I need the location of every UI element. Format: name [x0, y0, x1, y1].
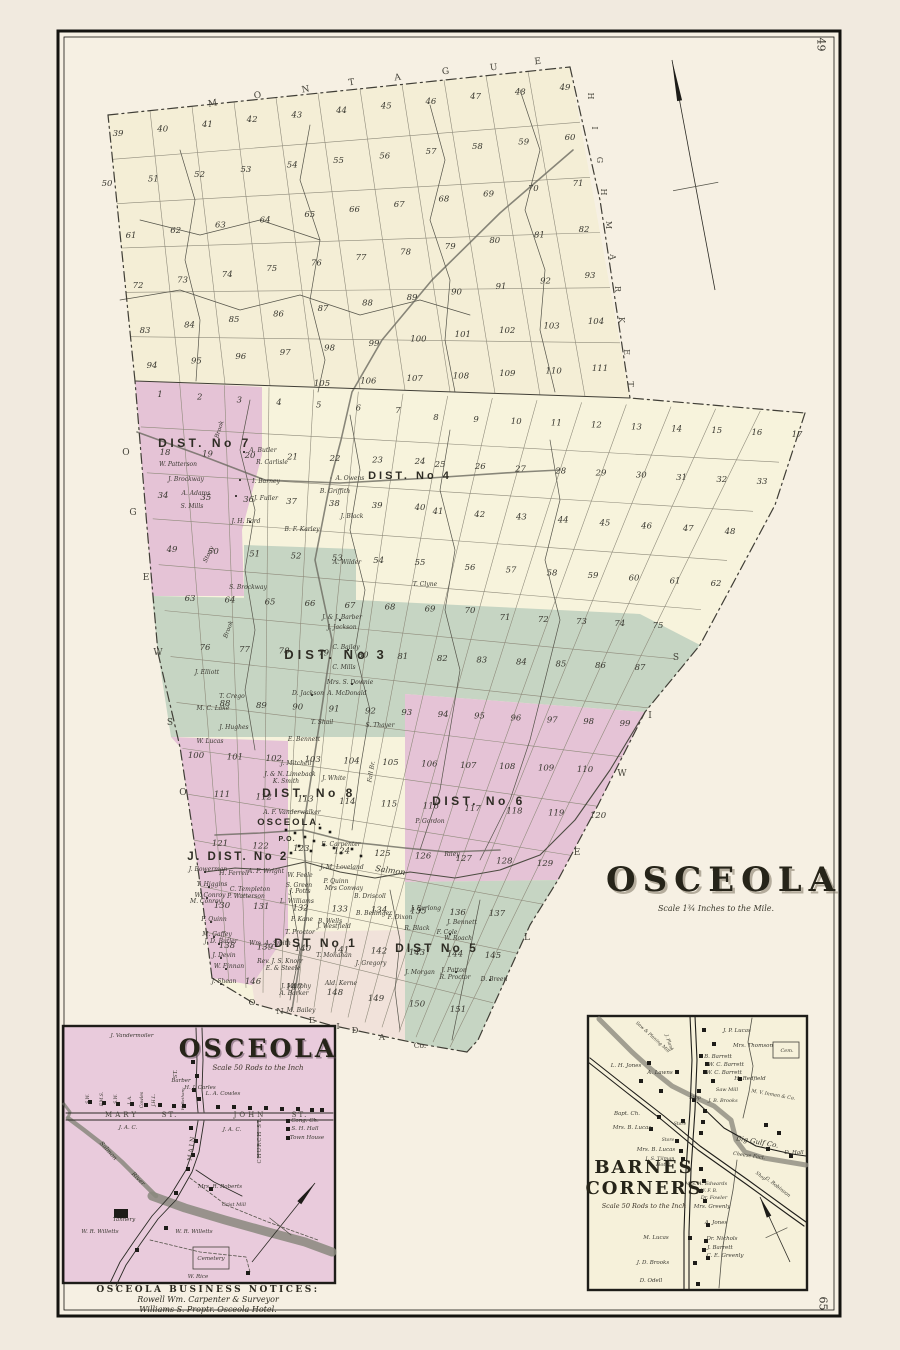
lot-number: 88	[362, 299, 373, 309]
resident-name: W. Lucas	[197, 738, 224, 745]
lot-number: 70	[528, 184, 539, 194]
lot-number: 122	[253, 842, 269, 852]
business-notice-line: Williams S. Proptr. Osceola Hotel.	[76, 1305, 340, 1315]
resident-name: J. & N. Limeback	[262, 771, 316, 778]
building-marker	[158, 1103, 162, 1107]
resident-name: M. Gaffey	[201, 931, 232, 938]
lot-number: 44	[557, 516, 569, 526]
resident-name: D. Jackson	[291, 690, 324, 697]
map-label: H. Redfield	[733, 1076, 766, 1082]
building-marker	[703, 1109, 707, 1113]
lot-number: 108	[499, 762, 516, 772]
building-marker	[647, 1061, 651, 1065]
resident-name: J. Morgan	[403, 969, 435, 976]
map-label: L. H. Jones	[610, 1063, 642, 1069]
lot-number: 59	[518, 138, 529, 148]
building-marker	[248, 1106, 252, 1110]
map-label: Cemetery	[197, 1256, 225, 1262]
map-label: D. Odell	[639, 1278, 663, 1284]
lot-number: 68	[438, 195, 449, 205]
building-marker	[280, 1107, 284, 1111]
lot-number: 101	[227, 752, 243, 762]
resident-name: E. Bennett	[287, 736, 321, 743]
lot-number: 5	[316, 401, 321, 411]
lot-number: 13	[631, 422, 642, 432]
lot-number: 89	[407, 293, 418, 303]
map-label: A	[378, 1033, 386, 1043]
lot-number: 45	[598, 518, 610, 528]
resident-name: F. Dixon	[387, 914, 413, 921]
lot-number: 83	[476, 656, 487, 666]
map-label: M	[604, 221, 613, 229]
building-marker	[286, 1127, 290, 1131]
building-marker	[688, 1236, 692, 1240]
lot-number: 151	[450, 1005, 466, 1015]
lot-number: 73	[576, 617, 587, 627]
business-notices-heading: OSCEOLA BUSINESS NOTICES:	[76, 1285, 340, 1295]
resident-name: J. Jackson	[325, 624, 356, 631]
lot-number: 51	[148, 174, 159, 184]
lot-number: 92	[540, 277, 551, 287]
resident-name: W. Feele	[287, 872, 313, 879]
map-label: Grist Mill	[222, 1202, 246, 1208]
resident-name: J. Murphy	[279, 983, 311, 990]
lot-number: 70	[465, 606, 476, 616]
lot-number: 29	[595, 469, 607, 479]
building-marker	[702, 1028, 706, 1032]
lot-number: 42	[246, 115, 258, 125]
lot-number: 95	[474, 712, 485, 722]
building-marker	[216, 1105, 220, 1109]
resident-name: A. Barker	[278, 990, 309, 997]
resident-name: Mrs Conway	[324, 885, 364, 892]
lot-number: 42	[473, 510, 485, 520]
resident-name: Ald. Kerne	[324, 980, 358, 987]
lot-number: 93	[585, 271, 596, 281]
resident-name: R. Carlisle	[255, 459, 288, 466]
lot-number: 47	[469, 92, 481, 102]
lot-number: 56	[379, 151, 390, 161]
lot-number: 137	[489, 909, 506, 919]
resident-name: T. Higgins	[197, 881, 228, 888]
lot-number: 119	[548, 809, 565, 819]
lot-number: 14	[671, 424, 682, 434]
lot-number: 124	[334, 847, 350, 857]
resident-name: M. C. Lake	[196, 705, 230, 712]
map-label: B. Barrett	[703, 1054, 733, 1060]
building-marker	[294, 832, 297, 835]
lot-number: 52	[194, 170, 205, 180]
lot-number: 142	[371, 947, 387, 957]
map-label: M. Lucas	[642, 1235, 669, 1241]
lot-number: 87	[635, 663, 646, 673]
lot-number: 48	[514, 88, 526, 98]
lot-number: 37	[286, 497, 297, 507]
lot-number: 16	[751, 428, 762, 438]
lot-number: 43	[515, 513, 527, 523]
building-marker	[189, 1126, 193, 1130]
lot-number: 150	[409, 999, 426, 1009]
map-label: D. Hall	[783, 1150, 804, 1156]
resident-name: J. D. Butler	[202, 938, 238, 945]
lot-number: 101	[455, 330, 471, 340]
lot-number: 49	[166, 545, 178, 555]
resident-name: Rev. J. S. Knorr	[256, 958, 304, 965]
building-marker	[329, 831, 332, 834]
building-marker	[197, 1097, 201, 1101]
lot-number: 46	[424, 97, 436, 107]
building-marker	[310, 1108, 314, 1112]
resident-name: J. Hughes	[217, 724, 248, 731]
lot-number: 90	[292, 703, 303, 713]
lot-number: 59	[588, 571, 599, 581]
lot-number: 82	[437, 654, 448, 664]
resident-name: Riley	[443, 851, 460, 858]
lot-number: 57	[506, 566, 517, 576]
map-label: Cong. Ch.	[291, 1118, 319, 1124]
map-label: I	[590, 126, 599, 129]
map-label: J. Barrett	[706, 1245, 733, 1251]
map-label: S.W.	[85, 1094, 91, 1104]
lot-number: 98	[583, 717, 594, 727]
lot-number: 108	[453, 372, 470, 382]
building-marker	[702, 1248, 706, 1252]
lot-number: 10	[511, 417, 522, 427]
lot-number: 23	[371, 456, 383, 466]
lot-number: 81	[534, 231, 545, 241]
map-label: E	[534, 57, 542, 68]
lot-number: 73	[177, 275, 188, 285]
map-label: Mrs. B. Lucas	[636, 1147, 676, 1153]
lot-number: 93	[401, 708, 412, 718]
lot-number: 103	[543, 321, 559, 331]
lot-number: 72	[538, 615, 549, 625]
resident-name: T. Monahan	[316, 952, 352, 959]
lot-number: 105	[382, 758, 398, 768]
lot-number: 79	[445, 242, 456, 252]
lot-number: 78	[400, 247, 411, 257]
lot-number: 71	[500, 613, 511, 623]
lot-number: 99	[620, 719, 631, 729]
lot-number: 102	[266, 754, 282, 764]
map-label: O	[249, 998, 256, 1008]
lot-number: 15	[711, 426, 722, 436]
lot-number: 53	[240, 165, 251, 175]
lot-number: 109	[499, 369, 516, 379]
resident-name: K. Smith	[272, 778, 299, 785]
building-marker	[675, 1070, 679, 1074]
building-marker	[659, 1089, 663, 1093]
lot-number: 33	[757, 477, 768, 487]
building-marker	[313, 840, 316, 843]
map-label: A	[608, 253, 617, 260]
lot-number: 105	[314, 379, 330, 389]
lot-number: 123	[293, 844, 309, 854]
lot-number: 32	[716, 475, 727, 485]
building-marker	[696, 1282, 700, 1286]
lot-number: 48	[724, 527, 736, 537]
lot-number: 76	[200, 643, 211, 653]
lot-number: 136	[450, 908, 467, 918]
resident-name: W. Patterson	[159, 461, 197, 468]
lot-number: 115	[381, 799, 397, 809]
map-label: Barber	[170, 1078, 191, 1084]
lot-number: 96	[510, 714, 521, 724]
lot-number: 149	[368, 994, 385, 1004]
lot-number: 74	[614, 619, 625, 629]
lot-number: 104	[588, 317, 604, 327]
map-label: W	[617, 769, 627, 779]
building-marker	[777, 1131, 781, 1135]
lot-number: 41	[432, 507, 444, 517]
building-marker	[285, 829, 288, 832]
map-label: W. R. Willetts	[81, 1229, 118, 1235]
map-label: M	[207, 98, 218, 109]
resident-name: R. Black	[403, 925, 430, 932]
lot-number: 65	[304, 210, 315, 220]
map-label: Store	[662, 1137, 675, 1143]
map-label: W. Rice	[188, 1274, 209, 1280]
map-label: Store	[674, 1121, 687, 1127]
lot-number: 11	[551, 419, 562, 429]
lot-number: 36	[243, 495, 254, 505]
resident-name: P. Gordon	[414, 818, 444, 825]
map-label: E	[574, 848, 581, 858]
resident-name: A. McDonald	[326, 690, 366, 697]
map-label: I	[648, 711, 652, 721]
lot-number: 43	[290, 111, 302, 121]
lot-number: 26	[474, 462, 486, 472]
map-label: L.A.	[127, 1095, 133, 1106]
building-marker	[195, 1074, 199, 1078]
building-marker	[304, 836, 307, 839]
osceola-inset-title: OSCEOLA	[156, 1034, 360, 1063]
resident-name: C. Mills	[332, 664, 355, 671]
lot-number: 85	[229, 315, 240, 325]
resident-name: J. Elliott	[193, 669, 220, 676]
lot-number: 100	[188, 751, 205, 761]
resident-name: B. Griffith	[319, 488, 350, 495]
lot-number: 58	[472, 142, 483, 152]
barnes-inset-title-line2: CORNERS	[560, 1179, 728, 1200]
building-marker	[310, 850, 313, 853]
lot-number: 40	[414, 503, 426, 513]
resident-name: P. Kane	[290, 916, 314, 923]
lot-number: 84	[516, 658, 527, 668]
resident-name: E. & Steele	[265, 965, 301, 972]
barnes-inset-scale: Scale 50 Rods to the Inch	[560, 1202, 728, 1210]
map-scale-note: Scale 1¾ Inches to the Mile.	[606, 904, 826, 913]
building-marker	[320, 1108, 324, 1112]
lot-number: 27	[514, 464, 526, 474]
map-label: E	[143, 573, 150, 583]
building-marker	[360, 855, 363, 858]
building-marker	[172, 1104, 176, 1108]
lot-number: 68	[385, 603, 396, 613]
map-region	[135, 381, 262, 596]
lot-number: 82	[579, 225, 590, 235]
lot-number: 87	[318, 304, 329, 314]
resident-name: A. F. Wright	[247, 868, 285, 875]
lot-number: 12	[591, 421, 602, 431]
building-marker	[232, 1105, 236, 1109]
page-number-bottom: 65	[817, 1295, 830, 1313]
resident-name: E. Carpenter	[320, 841, 361, 848]
building-marker	[186, 1167, 190, 1171]
map-label: W. R. Willetts	[175, 1229, 212, 1235]
lot-number: 97	[547, 715, 558, 725]
map-rect	[588, 1016, 807, 1290]
lot-number: 97	[280, 348, 291, 358]
osceola-inset-scale: Scale 50 Rods to the Inch	[156, 1064, 360, 1072]
map-label: Town House	[290, 1135, 325, 1141]
barnes-inset-title-block: BARNES CORNERS Scale 50 Rods to the Inch	[560, 1158, 728, 1210]
lot-number: 133	[332, 904, 348, 914]
lot-number: 9	[473, 415, 479, 425]
resident-name: J. Furlong	[409, 905, 441, 912]
map-label: O	[179, 788, 186, 798]
resident-name: A. Butler	[248, 447, 277, 454]
map-label: L. A. Cowles	[205, 1091, 241, 1097]
lot-number: 19	[202, 450, 213, 460]
lot-number: 72	[133, 281, 144, 291]
resident-name: M. Bailey	[286, 1007, 316, 1014]
lot-number: 100	[410, 335, 427, 345]
map-label: A. Jones	[704, 1220, 728, 1226]
lot-number: 24	[414, 457, 426, 467]
lot-number: 49	[559, 83, 571, 93]
lot-number: 7	[395, 406, 401, 416]
building-marker	[290, 852, 293, 855]
map-label: J. D. Brooks	[636, 1260, 670, 1266]
lot-number: 55	[415, 558, 426, 568]
district-label: P.O.	[278, 836, 295, 843]
lot-number: 17	[792, 430, 803, 440]
resident-name: S. Brockway	[229, 584, 267, 591]
lot-number: 85	[555, 659, 566, 669]
building-marker	[699, 1131, 703, 1135]
resident-name: T. Shail	[311, 719, 333, 726]
lot-number: 148	[327, 988, 344, 998]
lot-number: 98	[324, 343, 335, 353]
lot-number: 62	[170, 226, 181, 236]
map-label: R	[613, 286, 622, 293]
lot-number: 89	[256, 701, 267, 711]
building-marker	[246, 1271, 250, 1275]
lot-number: 55	[333, 156, 344, 166]
building-marker	[711, 1079, 715, 1083]
map-label: S.W.	[113, 1094, 119, 1104]
lot-number: 109	[538, 764, 555, 774]
resident-name: J. Brockway	[166, 476, 204, 483]
lot-number: 77	[239, 645, 250, 655]
map-label: Mrs. R. Roberts	[197, 1184, 242, 1190]
lot-number: 66	[349, 205, 360, 215]
lot-number: 39	[372, 501, 383, 511]
district-label: DIST. No 7	[158, 436, 252, 450]
map-label: Shop	[689, 1095, 701, 1101]
building-marker	[697, 1089, 701, 1093]
map-label: T	[626, 381, 635, 387]
resident-name: J. M. Loveland	[318, 864, 364, 871]
map-label: L	[524, 933, 530, 943]
lot-number: 62	[711, 579, 722, 589]
resident-name: T. Proctor	[285, 929, 316, 936]
lot-number: 145	[485, 951, 501, 961]
map-label: W. C. Barrett	[708, 1062, 745, 1068]
map-label: H	[586, 93, 595, 100]
map-label: Cowles	[139, 1091, 145, 1108]
map-label: Dr. Nichols	[705, 1236, 737, 1242]
lot-number: 91	[329, 704, 340, 714]
lot-number: 39	[113, 129, 124, 139]
map-label: C. E. Greenly	[707, 1253, 745, 1259]
building-marker	[164, 1226, 168, 1230]
resident-name: W. Finnan	[214, 963, 244, 970]
lot-number: 71	[573, 179, 584, 189]
lot-number: 44	[335, 106, 347, 116]
resident-name: J. Westfield	[315, 923, 351, 930]
resident-name: A. F. Vanderwalker	[262, 809, 321, 816]
lot-number: 120	[590, 811, 607, 821]
lot-number: 46	[640, 521, 652, 531]
building-marker	[639, 1079, 643, 1083]
resident-name: C. Templeton	[230, 886, 270, 893]
building-marker	[764, 1123, 768, 1127]
building-marker	[657, 1115, 661, 1119]
resident-name: B. F. Karley	[283, 526, 320, 533]
resident-name: J. Devin	[210, 952, 235, 959]
district-label: DIST. No 3	[284, 647, 388, 662]
lot-number: 2	[196, 393, 202, 403]
lot-number: 34	[158, 491, 169, 501]
map-label: O	[122, 448, 129, 458]
lot-number: 25	[434, 460, 446, 470]
map-label: G	[595, 157, 604, 163]
map-label: H	[599, 189, 608, 196]
lot-number: 75	[653, 621, 664, 631]
lot-number: 65	[265, 597, 276, 607]
resident-name: J. White	[320, 775, 346, 782]
lot-number: 83	[140, 326, 151, 336]
map-label: J. Vandermoiler	[110, 1033, 154, 1039]
resident-name: J. Bennett	[445, 919, 477, 926]
building-marker	[235, 495, 237, 497]
map-label: CHURCH ST.	[257, 1117, 263, 1164]
resident-name: J. Black	[339, 513, 364, 520]
lot-number: 66	[305, 599, 316, 609]
lot-number: 75	[266, 264, 277, 274]
page-number-top: 49	[815, 36, 828, 54]
lot-number: 92	[365, 706, 376, 716]
lot-number: 96	[235, 352, 246, 362]
resident-name: P. Watterson	[226, 893, 265, 900]
resident-name: J. Fuller	[252, 495, 279, 502]
lot-number: 41	[201, 120, 213, 130]
lot-number: 86	[595, 661, 606, 671]
lot-number: 104	[343, 757, 359, 767]
lot-number: 90	[451, 288, 462, 298]
lot-number: 60	[629, 574, 640, 584]
building-marker	[712, 1042, 716, 1046]
lot-number: 102	[499, 326, 515, 336]
map-canvas: 3940414243444546474849505152535455565758…	[0, 0, 900, 1350]
map-label: Mrs. B. Lucas	[612, 1125, 652, 1131]
business-notice-line: Rowell Wm. Carpenter & Surveyor	[76, 1295, 340, 1305]
resident-name: J. Potts	[287, 888, 310, 895]
resident-name: A. Wilder	[332, 559, 362, 566]
business-notices: OSCEOLA BUSINESS NOTICES: Rowell Wm. Car…	[76, 1285, 340, 1316]
